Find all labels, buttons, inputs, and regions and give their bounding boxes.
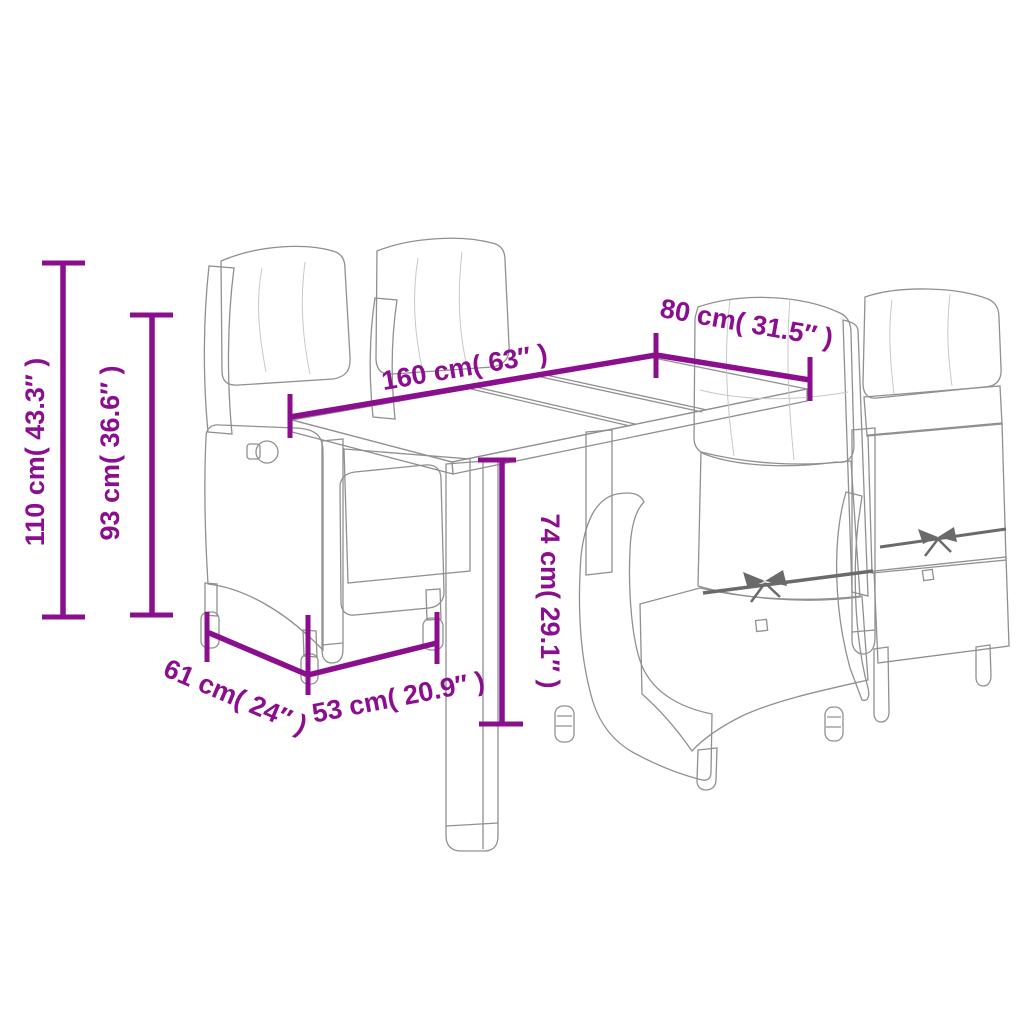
dimension-label-total-height: 110 cm( 43.3″ ) (20, 358, 50, 547)
product-dimension-diagram: 110 cm( 43.3″ ) 93 cm( 36.6″ ) 160 cm( 6… (0, 0, 1024, 1024)
dimension-label-table-height: 74 cm( 29.1″ ) (535, 513, 565, 688)
dimension-label-backrest-height: 93 cm( 36.6″ ) (95, 365, 125, 540)
